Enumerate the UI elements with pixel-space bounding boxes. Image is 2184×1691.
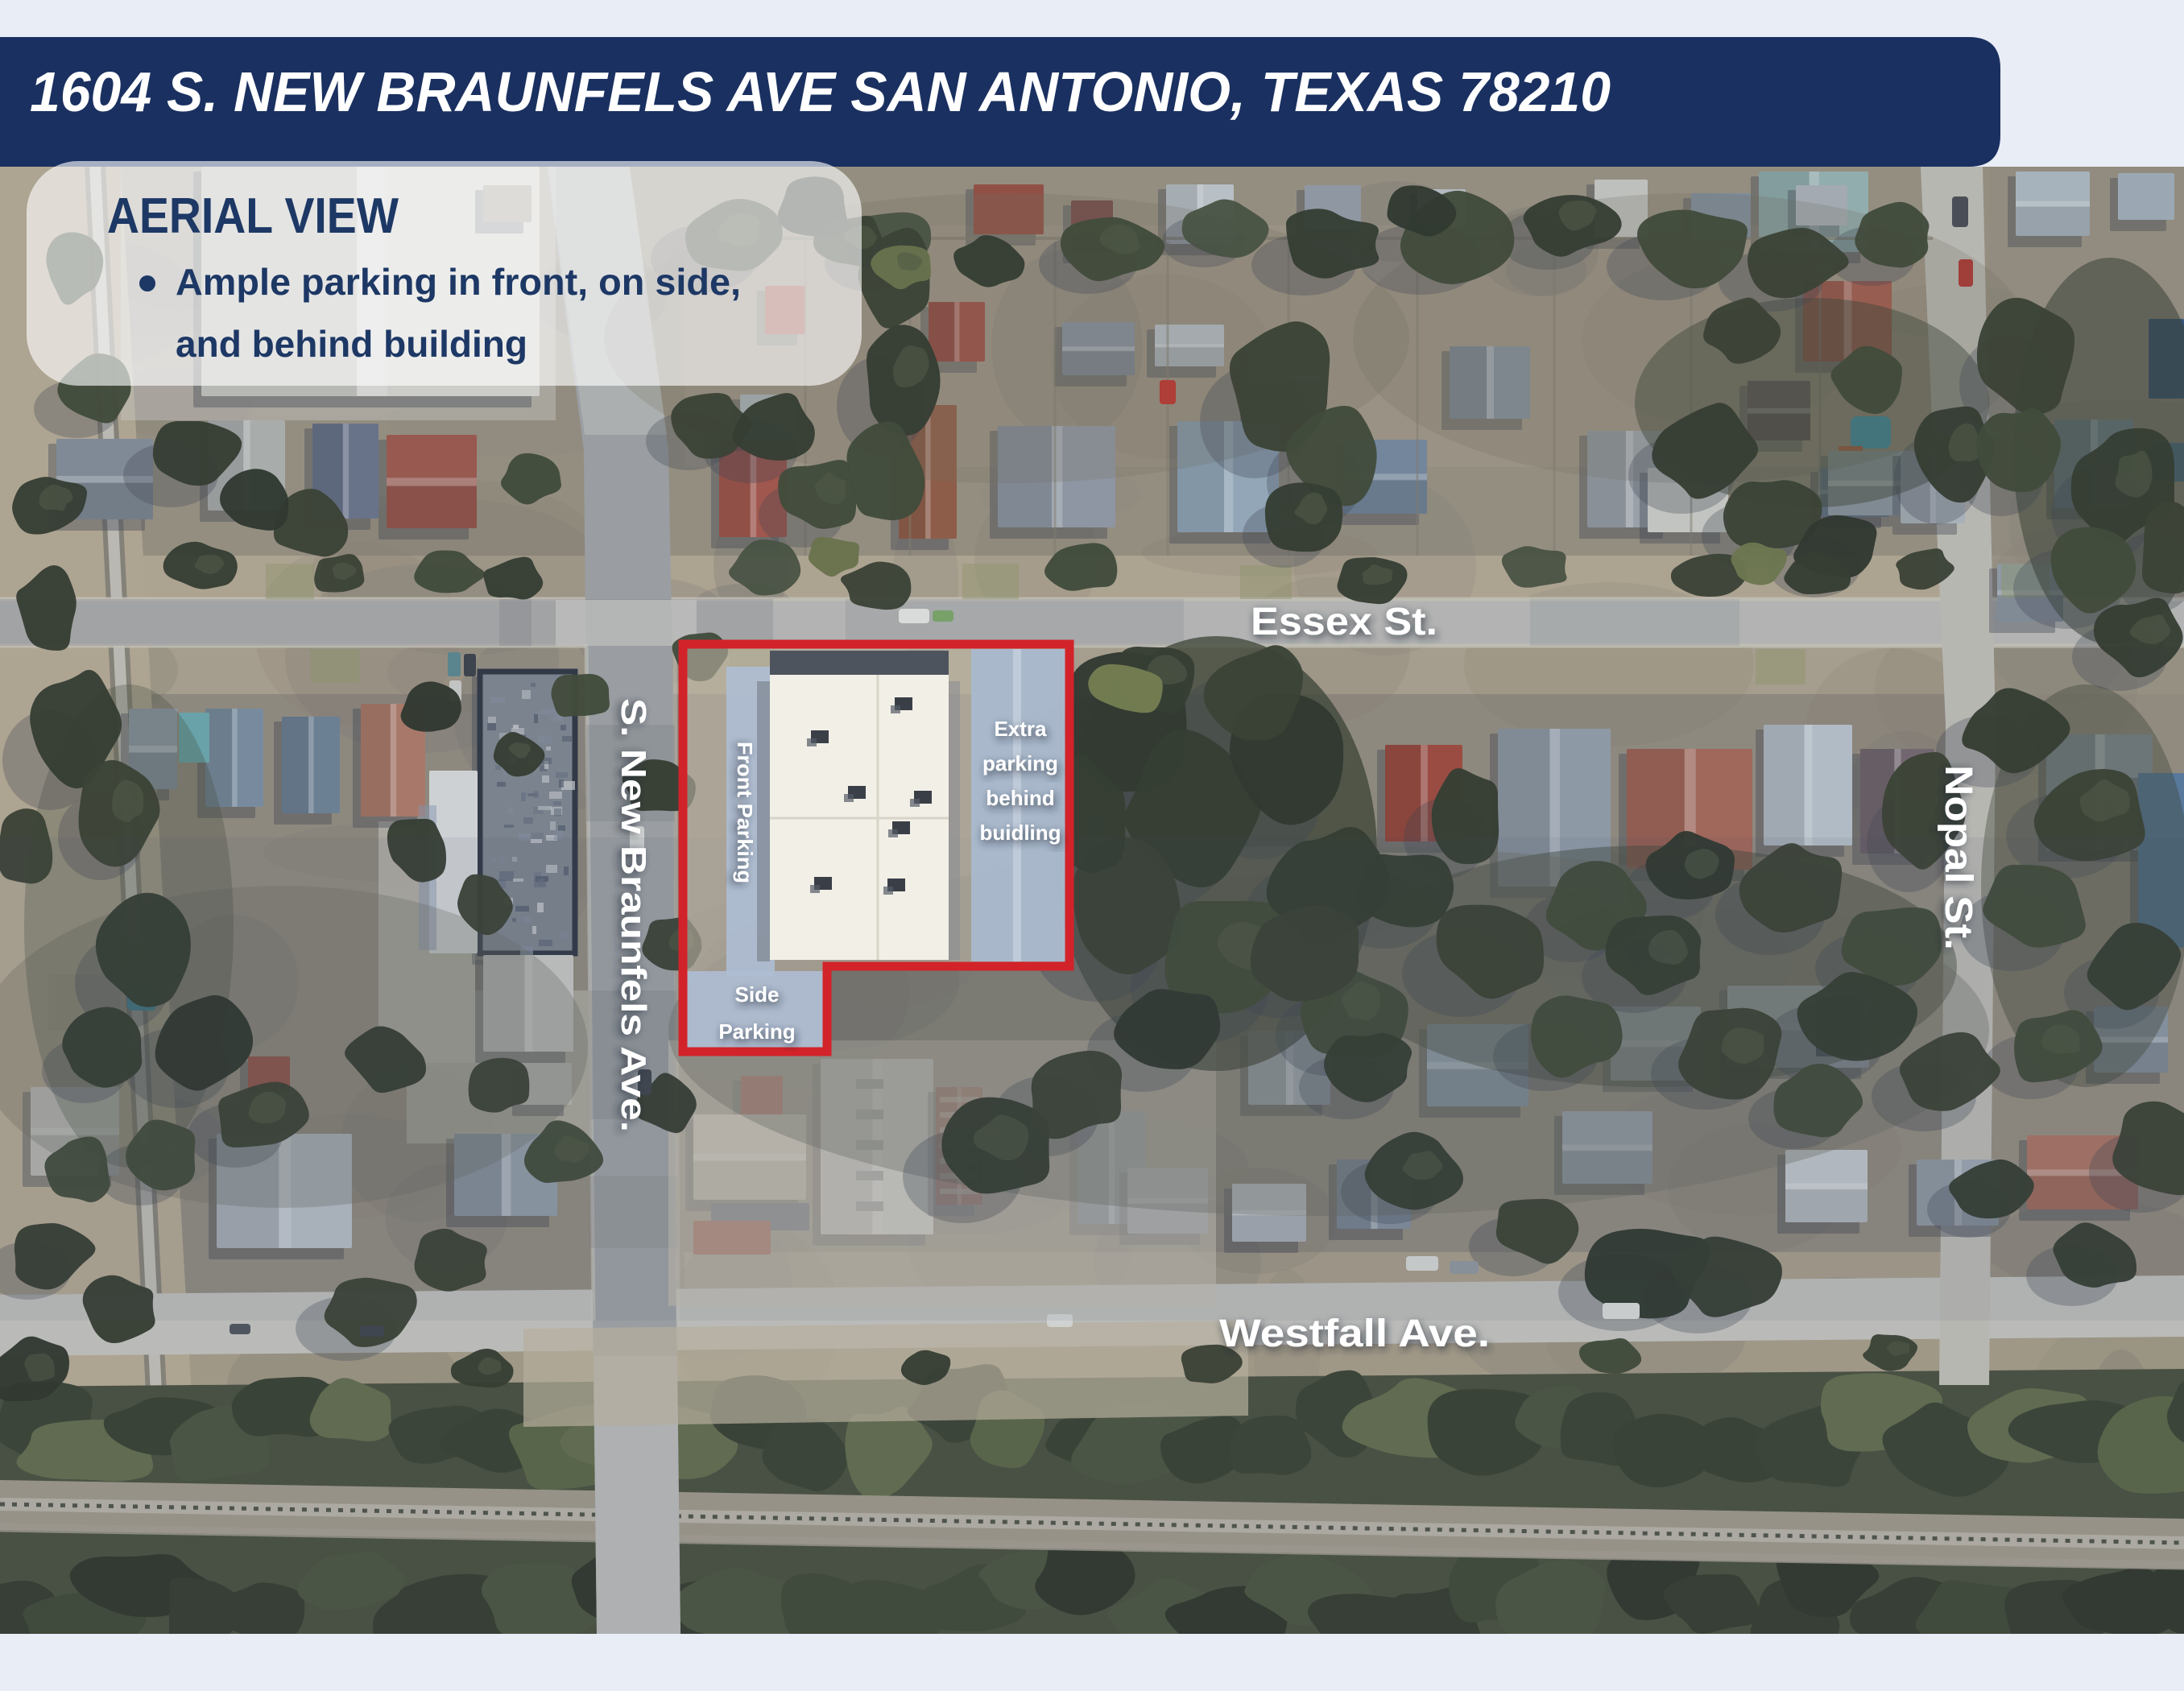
svg-text:1604 S. NEW BRAUNFELS AVE SAN: 1604 S. NEW BRAUNFELS AVE SAN ANTONIO, T… (30, 60, 1611, 123)
svg-text:Parking: Parking (718, 1019, 795, 1044)
svg-text:buidling: buidling (979, 821, 1061, 845)
svg-text:parking: parking (982, 751, 1058, 775)
svg-text:Nopal St.: Nopal St. (1937, 765, 1979, 950)
svg-text:Ample parking in front, on sid: Ample parking in front, on side, (176, 261, 741, 303)
svg-text:Front Parking: Front Parking (733, 742, 757, 883)
svg-text:Westfall Ave.: Westfall Ave. (1219, 1313, 1490, 1355)
svg-text:Side: Side (735, 982, 780, 1007)
svg-text:S. New Braunfels Ave.: S. New Braunfels Ave. (614, 698, 653, 1132)
svg-text:and behind building: and behind building (176, 323, 527, 365)
svg-text:Extra: Extra (994, 717, 1047, 741)
svg-text:behind: behind (986, 786, 1054, 810)
svg-text:AERIAL VIEW: AERIAL VIEW (107, 188, 399, 244)
svg-text:Essex St.: Essex St. (1251, 601, 1437, 643)
